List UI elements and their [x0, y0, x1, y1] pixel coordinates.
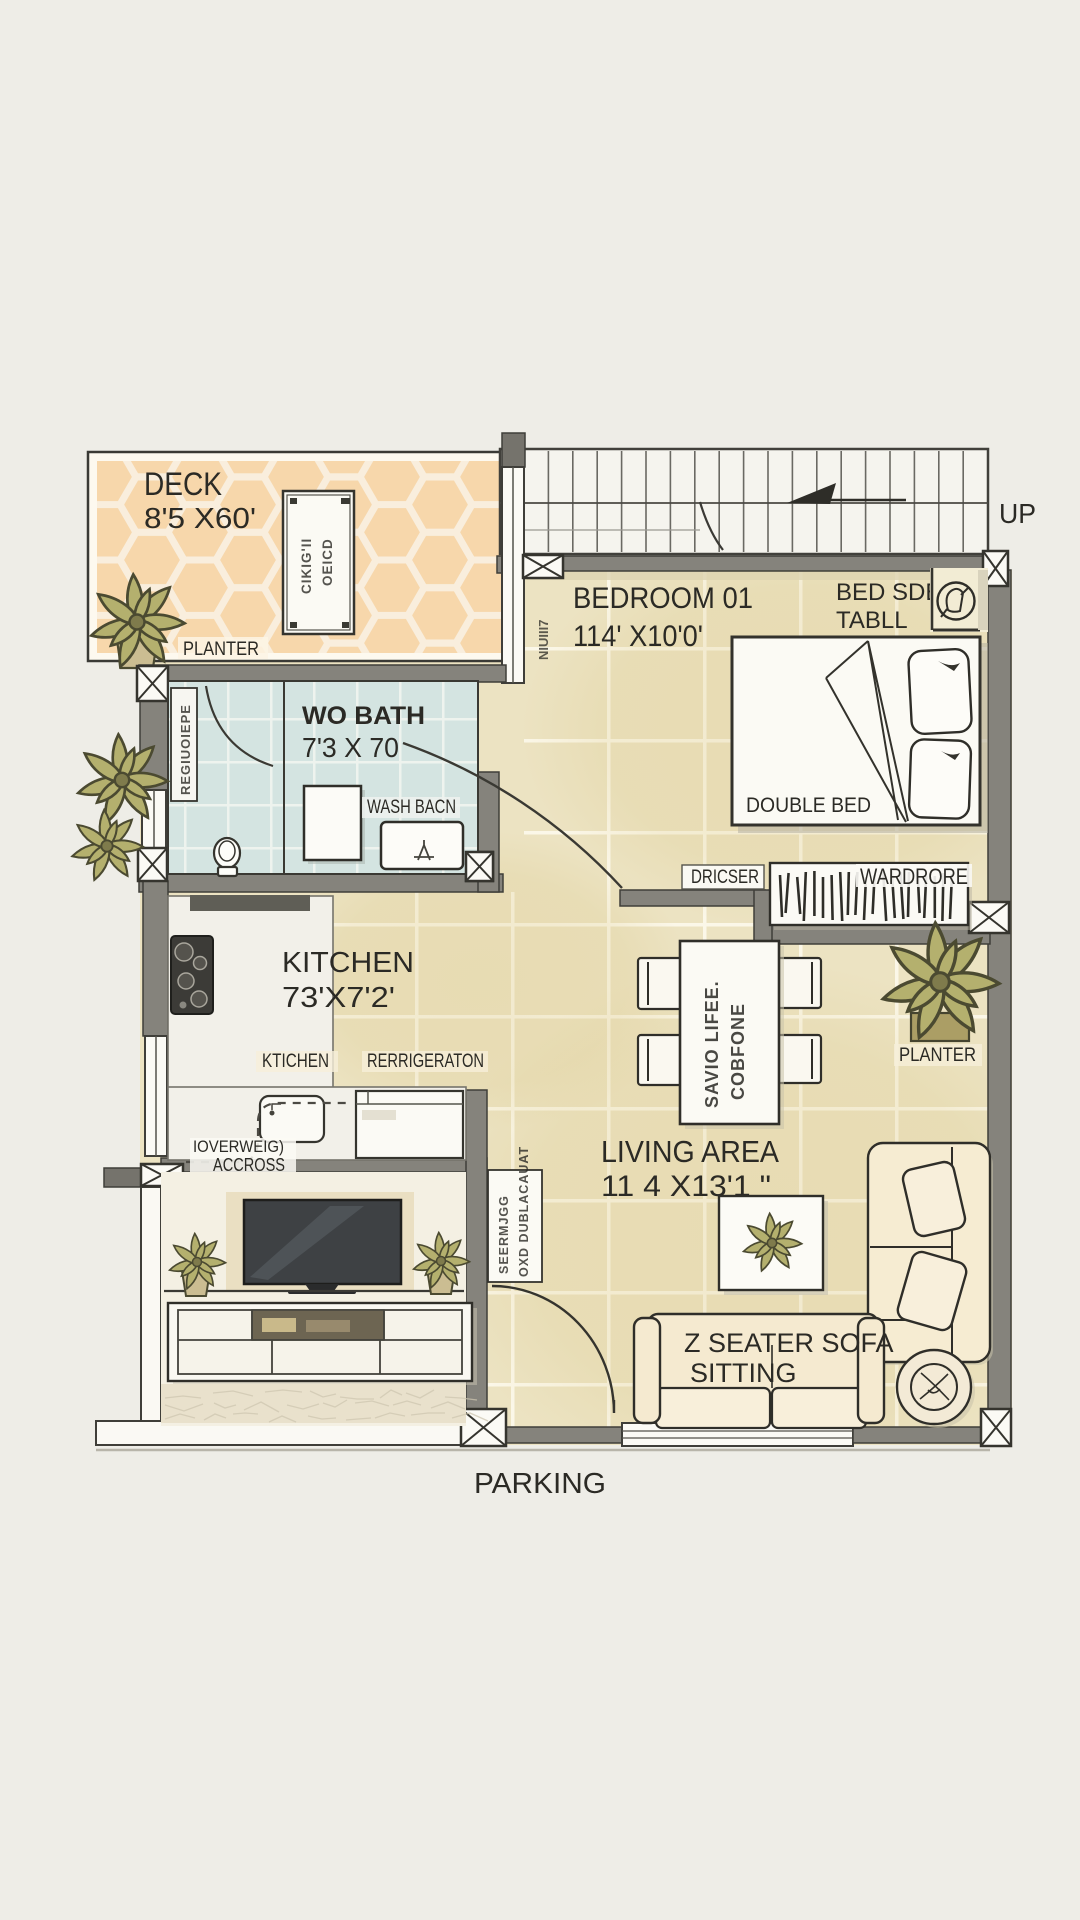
svg-text:SEERMJGG: SEERMJGG: [497, 1195, 511, 1274]
svg-text:OEICD: OEICD: [320, 538, 335, 586]
svg-text:SAVIO LIFEE.: SAVIO LIFEE.: [702, 980, 722, 1108]
svg-text:DRICSER: DRICSER: [691, 867, 759, 888]
svg-text:8'5 X60': 8'5 X60': [144, 503, 256, 535]
svg-text:NIUIII7: NIUIII7: [536, 620, 551, 660]
svg-text:UP: UP: [999, 498, 1036, 529]
svg-text:73'X7'2': 73'X7'2': [282, 982, 395, 1014]
svg-text:WASH BACN: WASH BACN: [367, 797, 456, 818]
svg-text:BED SDE: BED SDE: [836, 579, 941, 606]
svg-text:WARDRORE: WARDRORE: [860, 864, 968, 889]
svg-text:KTICHEN: KTICHEN: [262, 1051, 329, 1072]
svg-text:COBFONE: COBFONE: [728, 1003, 748, 1100]
svg-text:TABLL: TABLL: [836, 607, 908, 634]
svg-text:LIVING AREA: LIVING AREA: [601, 1134, 779, 1169]
svg-text:SITTING: SITTING: [690, 1358, 797, 1388]
svg-text:DECK: DECK: [144, 466, 222, 502]
svg-text:WO BATH: WO BATH: [302, 702, 425, 730]
svg-text:REGIUOIEPE: REGIUOIEPE: [178, 704, 193, 795]
svg-text:PARKING: PARKING: [474, 1468, 606, 1500]
svg-text:7'3 X 70: 7'3 X 70: [302, 732, 399, 763]
svg-text:CIKIG'II: CIKIG'II: [299, 538, 314, 594]
svg-text:Z SEATER SOFA: Z SEATER SOFA: [684, 1328, 894, 1358]
svg-text:OXD DUBLACAUAT: OXD DUBLACAUAT: [517, 1146, 531, 1277]
svg-text:KITCHEN: KITCHEN: [282, 947, 414, 979]
svg-text:PLANTER: PLANTER: [899, 1045, 976, 1066]
svg-text:RERRIGERATON: RERRIGERATON: [367, 1051, 484, 1072]
svg-text:114' X10'0': 114' X10'0': [573, 620, 703, 653]
svg-text:DOUBLE BED: DOUBLE BED: [746, 794, 871, 817]
svg-text:PLANTER: PLANTER: [183, 639, 259, 660]
svg-text:IOVERWEIG): IOVERWEIG): [193, 1137, 284, 1156]
svg-text:BEDROOM 01: BEDROOM 01: [573, 582, 753, 615]
